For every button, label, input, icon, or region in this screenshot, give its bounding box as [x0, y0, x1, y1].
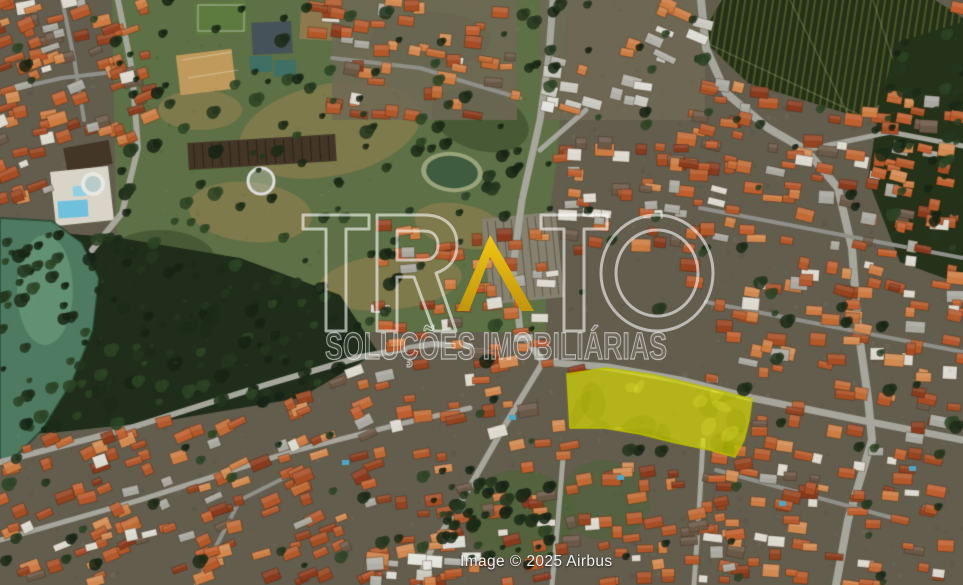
attribution-text: Image © 2025 Airbus: [460, 553, 613, 571]
satellite-map-canvas: [0, 0, 963, 585]
satellite-view: SOLUÇÕES IMOBILIÁRIAS Image © 2025 Airbu…: [0, 0, 963, 585]
